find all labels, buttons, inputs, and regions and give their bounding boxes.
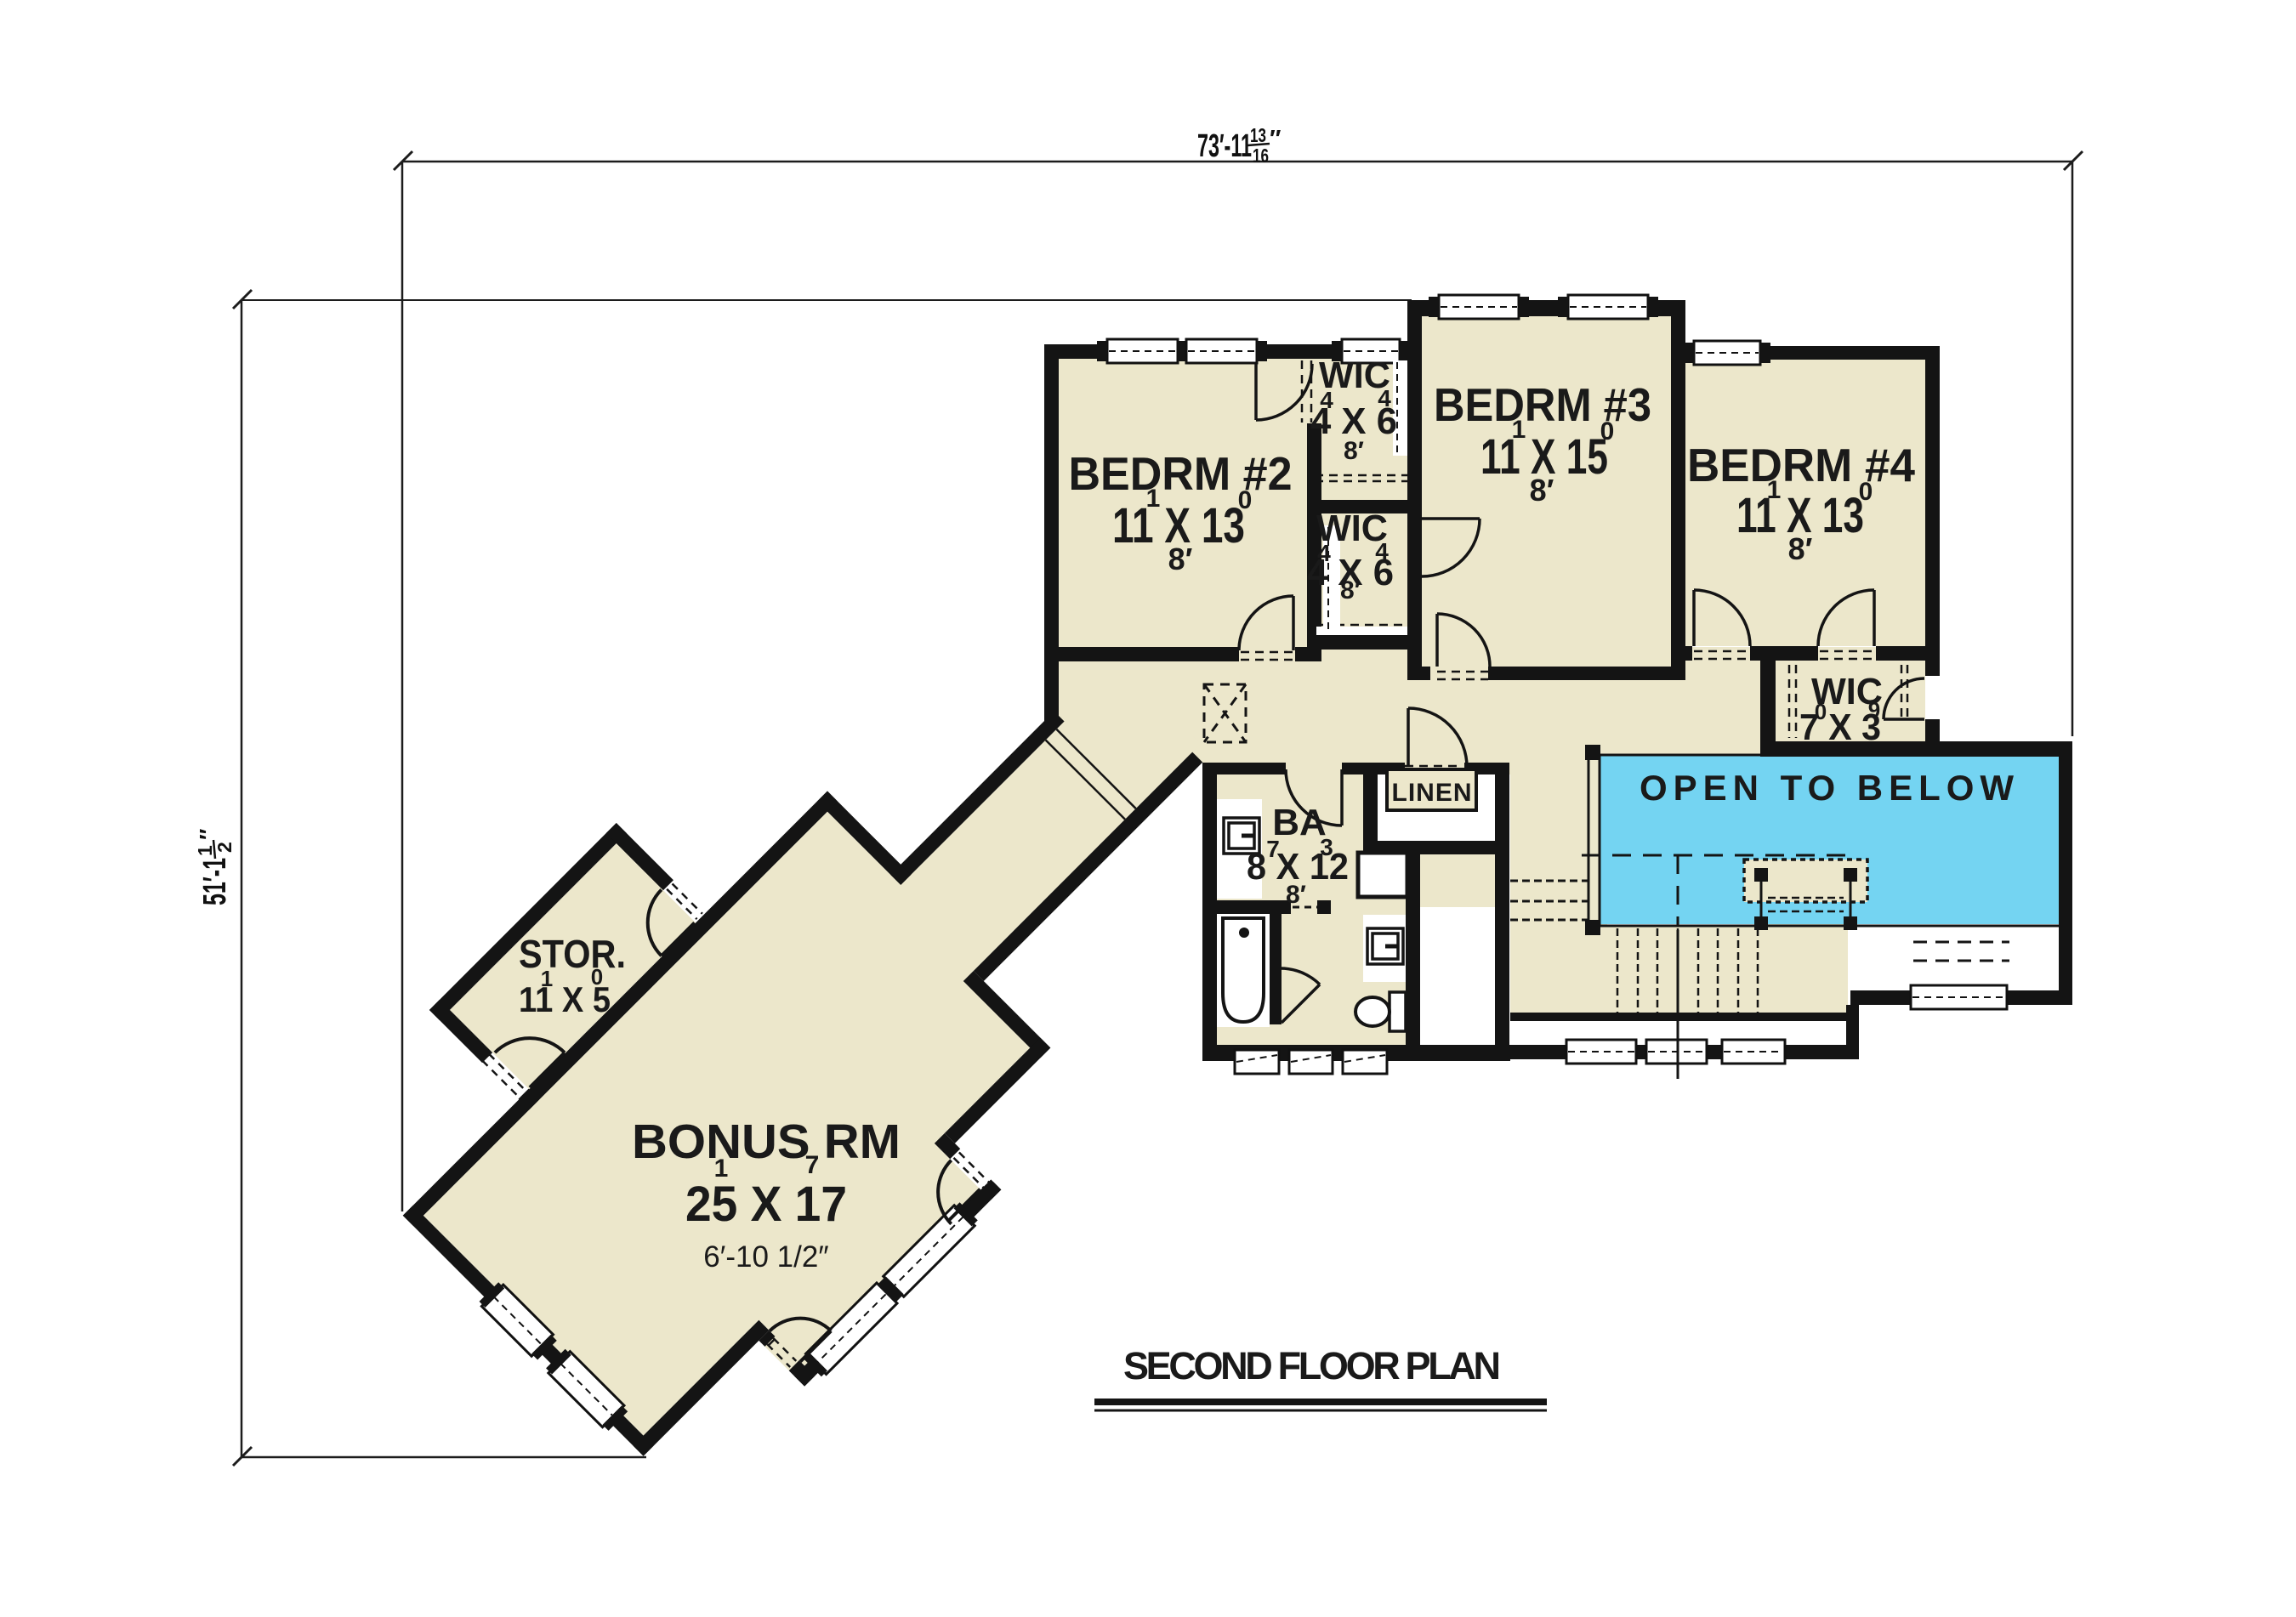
svg-text:BONUS RM: BONUS RM xyxy=(632,1115,901,1169)
svg-text:SECOND FLOOR PLAN: SECOND FLOOR PLAN xyxy=(1123,1344,1501,1387)
svg-text:4 X 6: 4 X 6 xyxy=(1310,400,1397,442)
svg-text:16: 16 xyxy=(1253,145,1269,167)
svg-text:8′: 8′ xyxy=(1788,531,1813,566)
svg-text:8′: 8′ xyxy=(1340,576,1361,604)
svg-text:″: ″ xyxy=(1270,125,1281,151)
svg-text:51′-1: 51′-1 xyxy=(197,858,233,905)
svg-text:″: ″ xyxy=(195,829,221,840)
svg-text:BEDRM #4: BEDRM #4 xyxy=(1687,439,1915,491)
svg-text:73′-11: 73′-11 xyxy=(1197,128,1252,164)
svg-text:STOR.: STOR. xyxy=(519,932,626,976)
svg-text:OPEN TO BELOW: OPEN TO BELOW xyxy=(1640,768,2014,808)
svg-text:13: 13 xyxy=(1250,124,1266,146)
svg-text:8′: 8′ xyxy=(1344,437,1364,465)
svg-text:7: 7 xyxy=(805,1151,820,1179)
svg-text:8′: 8′ xyxy=(1286,881,1306,909)
svg-text:LINEN: LINEN xyxy=(1392,779,1473,807)
svg-text:BA: BA xyxy=(1272,802,1327,843)
svg-text:BEDRM #2: BEDRM #2 xyxy=(1069,447,1293,500)
svg-text:2: 2 xyxy=(213,842,236,853)
svg-text:BEDRM #3: BEDRM #3 xyxy=(1434,378,1651,431)
svg-text:25 X 17: 25 X 17 xyxy=(685,1177,847,1232)
svg-text:7 X 3: 7 X 3 xyxy=(1799,706,1881,748)
svg-text:11 X 5: 11 X 5 xyxy=(519,979,611,1019)
svg-text:6′-10 1/2″: 6′-10 1/2″ xyxy=(703,1240,828,1274)
svg-text:8′: 8′ xyxy=(1530,473,1554,508)
svg-text:8′: 8′ xyxy=(1168,542,1193,576)
